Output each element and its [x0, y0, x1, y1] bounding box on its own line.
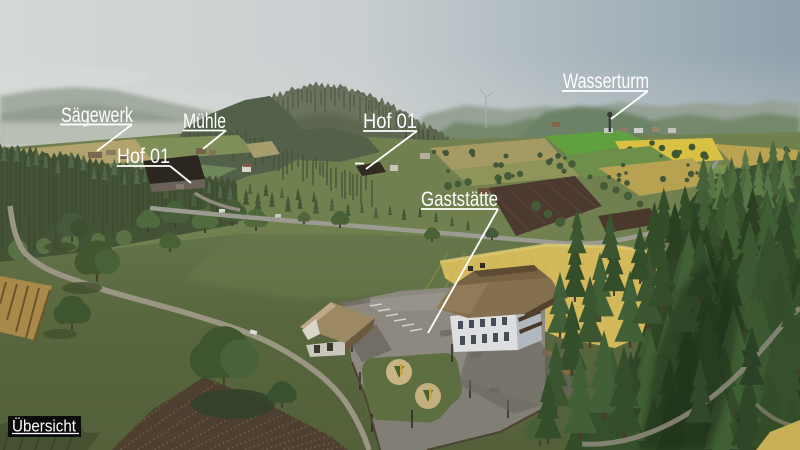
svg-text:Mühle: Mühle	[183, 110, 226, 133]
svg-text:Übersicht: Übersicht	[12, 418, 76, 436]
svg-text:Sägewerk: Sägewerk	[61, 104, 133, 127]
svg-text:Wasserturm: Wasserturm	[563, 70, 649, 93]
svg-text:Hof 01: Hof 01	[117, 145, 170, 168]
svg-text:Gaststätte: Gaststätte	[421, 188, 498, 211]
svg-text:Hof 01: Hof 01	[363, 110, 417, 133]
